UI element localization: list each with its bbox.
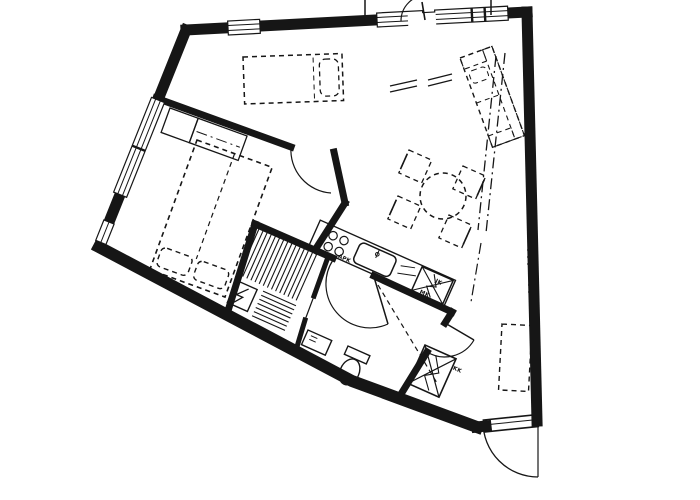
entrance-door-icon xyxy=(483,415,538,477)
window-icon xyxy=(228,19,261,35)
window-icon xyxy=(435,6,509,24)
floor-plan-canvas: APK JK MK xyxy=(0,0,700,500)
